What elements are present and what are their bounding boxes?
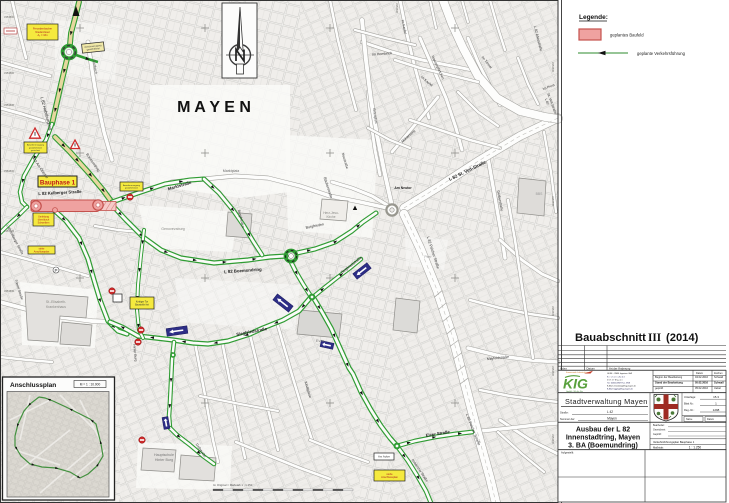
svg-text:gewährleistet: gewährleistet xyxy=(29,146,42,149)
svg-text:04.02.2016: 04.02.2016 xyxy=(695,375,709,379)
svg-text:Zeichen: Zeichen xyxy=(714,372,723,375)
svg-text:A₀ = 16n: A₀ = 16n xyxy=(37,33,48,37)
svg-text:Genovevaburg: Genovevaburg xyxy=(161,227,185,231)
svg-text:Peer: Peer xyxy=(424,255,432,259)
svg-text:Bauphase 1: Bauphase 1 xyxy=(40,180,76,187)
svg-text:3353500: 3353500 xyxy=(551,196,555,207)
svg-text:Hinter Burg: Hinter Burg xyxy=(155,458,173,462)
svg-text:Evm: Evm xyxy=(316,338,325,343)
svg-text:Mayen: Mayen xyxy=(607,416,617,420)
svg-text:3. BA (Boemundring): 3. BA (Boemundring) xyxy=(568,443,638,450)
svg-text:3353500: 3353500 xyxy=(4,169,15,173)
svg-text:Verkehrsführungsplan Bauphas: Verkehrsführungsplan Bauphase 1 xyxy=(653,440,695,444)
svg-text:E-Mail: verwaltung@kig-mayen.d: E-Mail: verwaltung@kig-mayen.de xyxy=(607,385,636,388)
svg-text:Geprüft:: Geprüft: xyxy=(653,433,662,436)
svg-text:E-Mail: logging@kig-mayen.de: E-Mail: logging@kig-mayen.de xyxy=(607,389,633,391)
svg-text:Datum: Datum xyxy=(707,418,714,421)
svg-text:Anschlussplan: Anschlussplan xyxy=(10,382,56,389)
svg-text:K i r c h s t r a ße 4 4: K i r c h s t r a ße 4 4 xyxy=(607,375,625,378)
svg-text:KIG: KIG xyxy=(563,376,588,392)
svg-text:Anwohnerzugang: Anwohnerzugang xyxy=(123,184,141,187)
svg-text:Innenstadtring, Mayen: Innenstadtring, Mayen xyxy=(566,435,640,442)
svg-text:geplante Verkehrsführung: geplante Verkehrsführung xyxy=(637,51,686,56)
svg-text:Maßstab:: Maßstab: xyxy=(653,445,664,449)
svg-text:3353500: 3353500 xyxy=(551,306,555,317)
svg-text:3353500: 3353500 xyxy=(4,289,15,293)
svg-text:Nummer der:: Nummer der: xyxy=(560,417,575,421)
svg-text:Aufgestellt:: Aufgestellt: xyxy=(561,451,574,455)
svg-text:geprüft: geprüft xyxy=(655,386,663,390)
svg-text:05.02.2016: 05.02.2016 xyxy=(695,386,709,390)
svg-text:Schwall: Schwall xyxy=(714,375,723,379)
svg-text:15.3: 15.3 xyxy=(713,395,719,399)
svg-text:Gezeichnet:: Gezeichnet: xyxy=(653,429,666,432)
svg-text:1 : 1.250: 1 : 1.250 xyxy=(689,445,702,449)
svg-text:Kirche: Kirche xyxy=(326,215,335,219)
svg-text:Marktplatz: Marktplatz xyxy=(223,169,240,173)
svg-text:Stand der Bearbeitung: Stand der Bearbeitung xyxy=(655,381,683,385)
svg-text:L 42: L 42 xyxy=(607,410,613,414)
svg-text:Am Neutor: Am Neutor xyxy=(394,186,412,190)
svg-text:3353500: 3353500 xyxy=(551,62,555,73)
svg-text:3353500: 3353500 xyxy=(551,434,555,445)
svg-text:Baustelle frei: Baustelle frei xyxy=(135,303,149,306)
svg-text:geplantes Baufeld: geplantes Baufeld xyxy=(610,33,644,38)
svg-text:3353500: 3353500 xyxy=(4,15,15,19)
svg-text:Straße:: Straße: xyxy=(560,411,569,415)
svg-text:3353500: 3353500 xyxy=(551,366,555,377)
svg-text:Datum: Datum xyxy=(587,366,596,370)
svg-text:Ausbau der L 82: Ausbau der L 82 xyxy=(576,427,630,434)
svg-text:Anwohnerzugang: Anwohnerzugang xyxy=(27,144,45,147)
svg-text:3353500: 3353500 xyxy=(395,3,399,14)
svg-text:Stadtverwaltung Mayen: Stadtverwaltung Mayen xyxy=(565,397,648,406)
svg-text:Am Acker: Am Acker xyxy=(378,455,390,459)
svg-text:Krankenhaus: Krankenhaus xyxy=(46,305,66,309)
svg-text:Hauptschule: Hauptschule xyxy=(154,453,174,457)
svg-text:Datum: Datum xyxy=(696,372,703,375)
svg-text:Legende:: Legende: xyxy=(579,14,608,21)
svg-text:Bauabschnitt: Bauabschnitt xyxy=(575,332,646,344)
svg-text:GDKE - OMBL Ingenieur GbR: GDKE - OMBL Ingenieur GbR xyxy=(607,372,633,375)
svg-text:Anschlussplan: Anschlussplan xyxy=(34,250,50,253)
svg-text:gesichert: gesichert xyxy=(31,149,40,152)
svg-text:Index: Index xyxy=(560,366,567,370)
svg-text:gewährleistet: gewährleistet xyxy=(125,187,138,190)
svg-text:3353500: 3353500 xyxy=(4,229,15,233)
svg-text:05.02.2016: 05.02.2016 xyxy=(695,381,709,385)
svg-text:Anschlussplan: Anschlussplan xyxy=(381,475,398,479)
svg-text:Tel.: 02651/4947 Fax: 4768: Tel.: 02651/4947 Fax: 4768 xyxy=(607,383,630,385)
svg-text:Schweiben: Schweiben xyxy=(38,221,50,224)
svg-text:Blatt Nr.:: Blatt Nr.: xyxy=(684,402,694,406)
svg-text:Name: Name xyxy=(686,418,693,421)
svg-text:M = 1 : 10.000: M = 1 : 10.000 xyxy=(80,383,101,387)
svg-text:Unterlage:: Unterlage: xyxy=(684,395,696,399)
svg-text:Im Original = Maßstab 1 : 1.25: Im Original = Maßstab 1 : 1.250 xyxy=(213,483,253,487)
svg-text:Schwall: Schwall xyxy=(714,381,724,385)
svg-text:Kommunale Infrastruktur: Kommunale Infrastruktur xyxy=(566,371,588,374)
svg-text:Uebel: Uebel xyxy=(714,386,721,390)
svg-text:BBS: BBS xyxy=(536,192,544,196)
svg-text:M A Y E N: M A Y E N xyxy=(177,99,251,116)
svg-text:III: III xyxy=(648,332,661,344)
svg-text:Beginn der Bearbeitung: Beginn der Bearbeitung xyxy=(655,375,683,379)
svg-text:Bearbeitet:: Bearbeitet: xyxy=(653,424,665,427)
svg-text:5 6 7 2 7 M a y e n: 5 6 7 2 7 M a y e n xyxy=(607,379,623,381)
svg-text:Art der Änderung: Art der Änderung xyxy=(609,366,631,370)
svg-text:3353500: 3353500 xyxy=(4,71,15,75)
svg-text:3353500: 3353500 xyxy=(4,103,15,107)
svg-text:Reg.-Nr.:: Reg.-Nr.: xyxy=(684,408,695,412)
svg-text:P: P xyxy=(54,268,57,273)
svg-text:1298: 1298 xyxy=(713,408,720,412)
svg-text:(2014): (2014) xyxy=(666,332,699,344)
svg-text:St.-Elisabeth-: St.-Elisabeth- xyxy=(46,300,66,304)
